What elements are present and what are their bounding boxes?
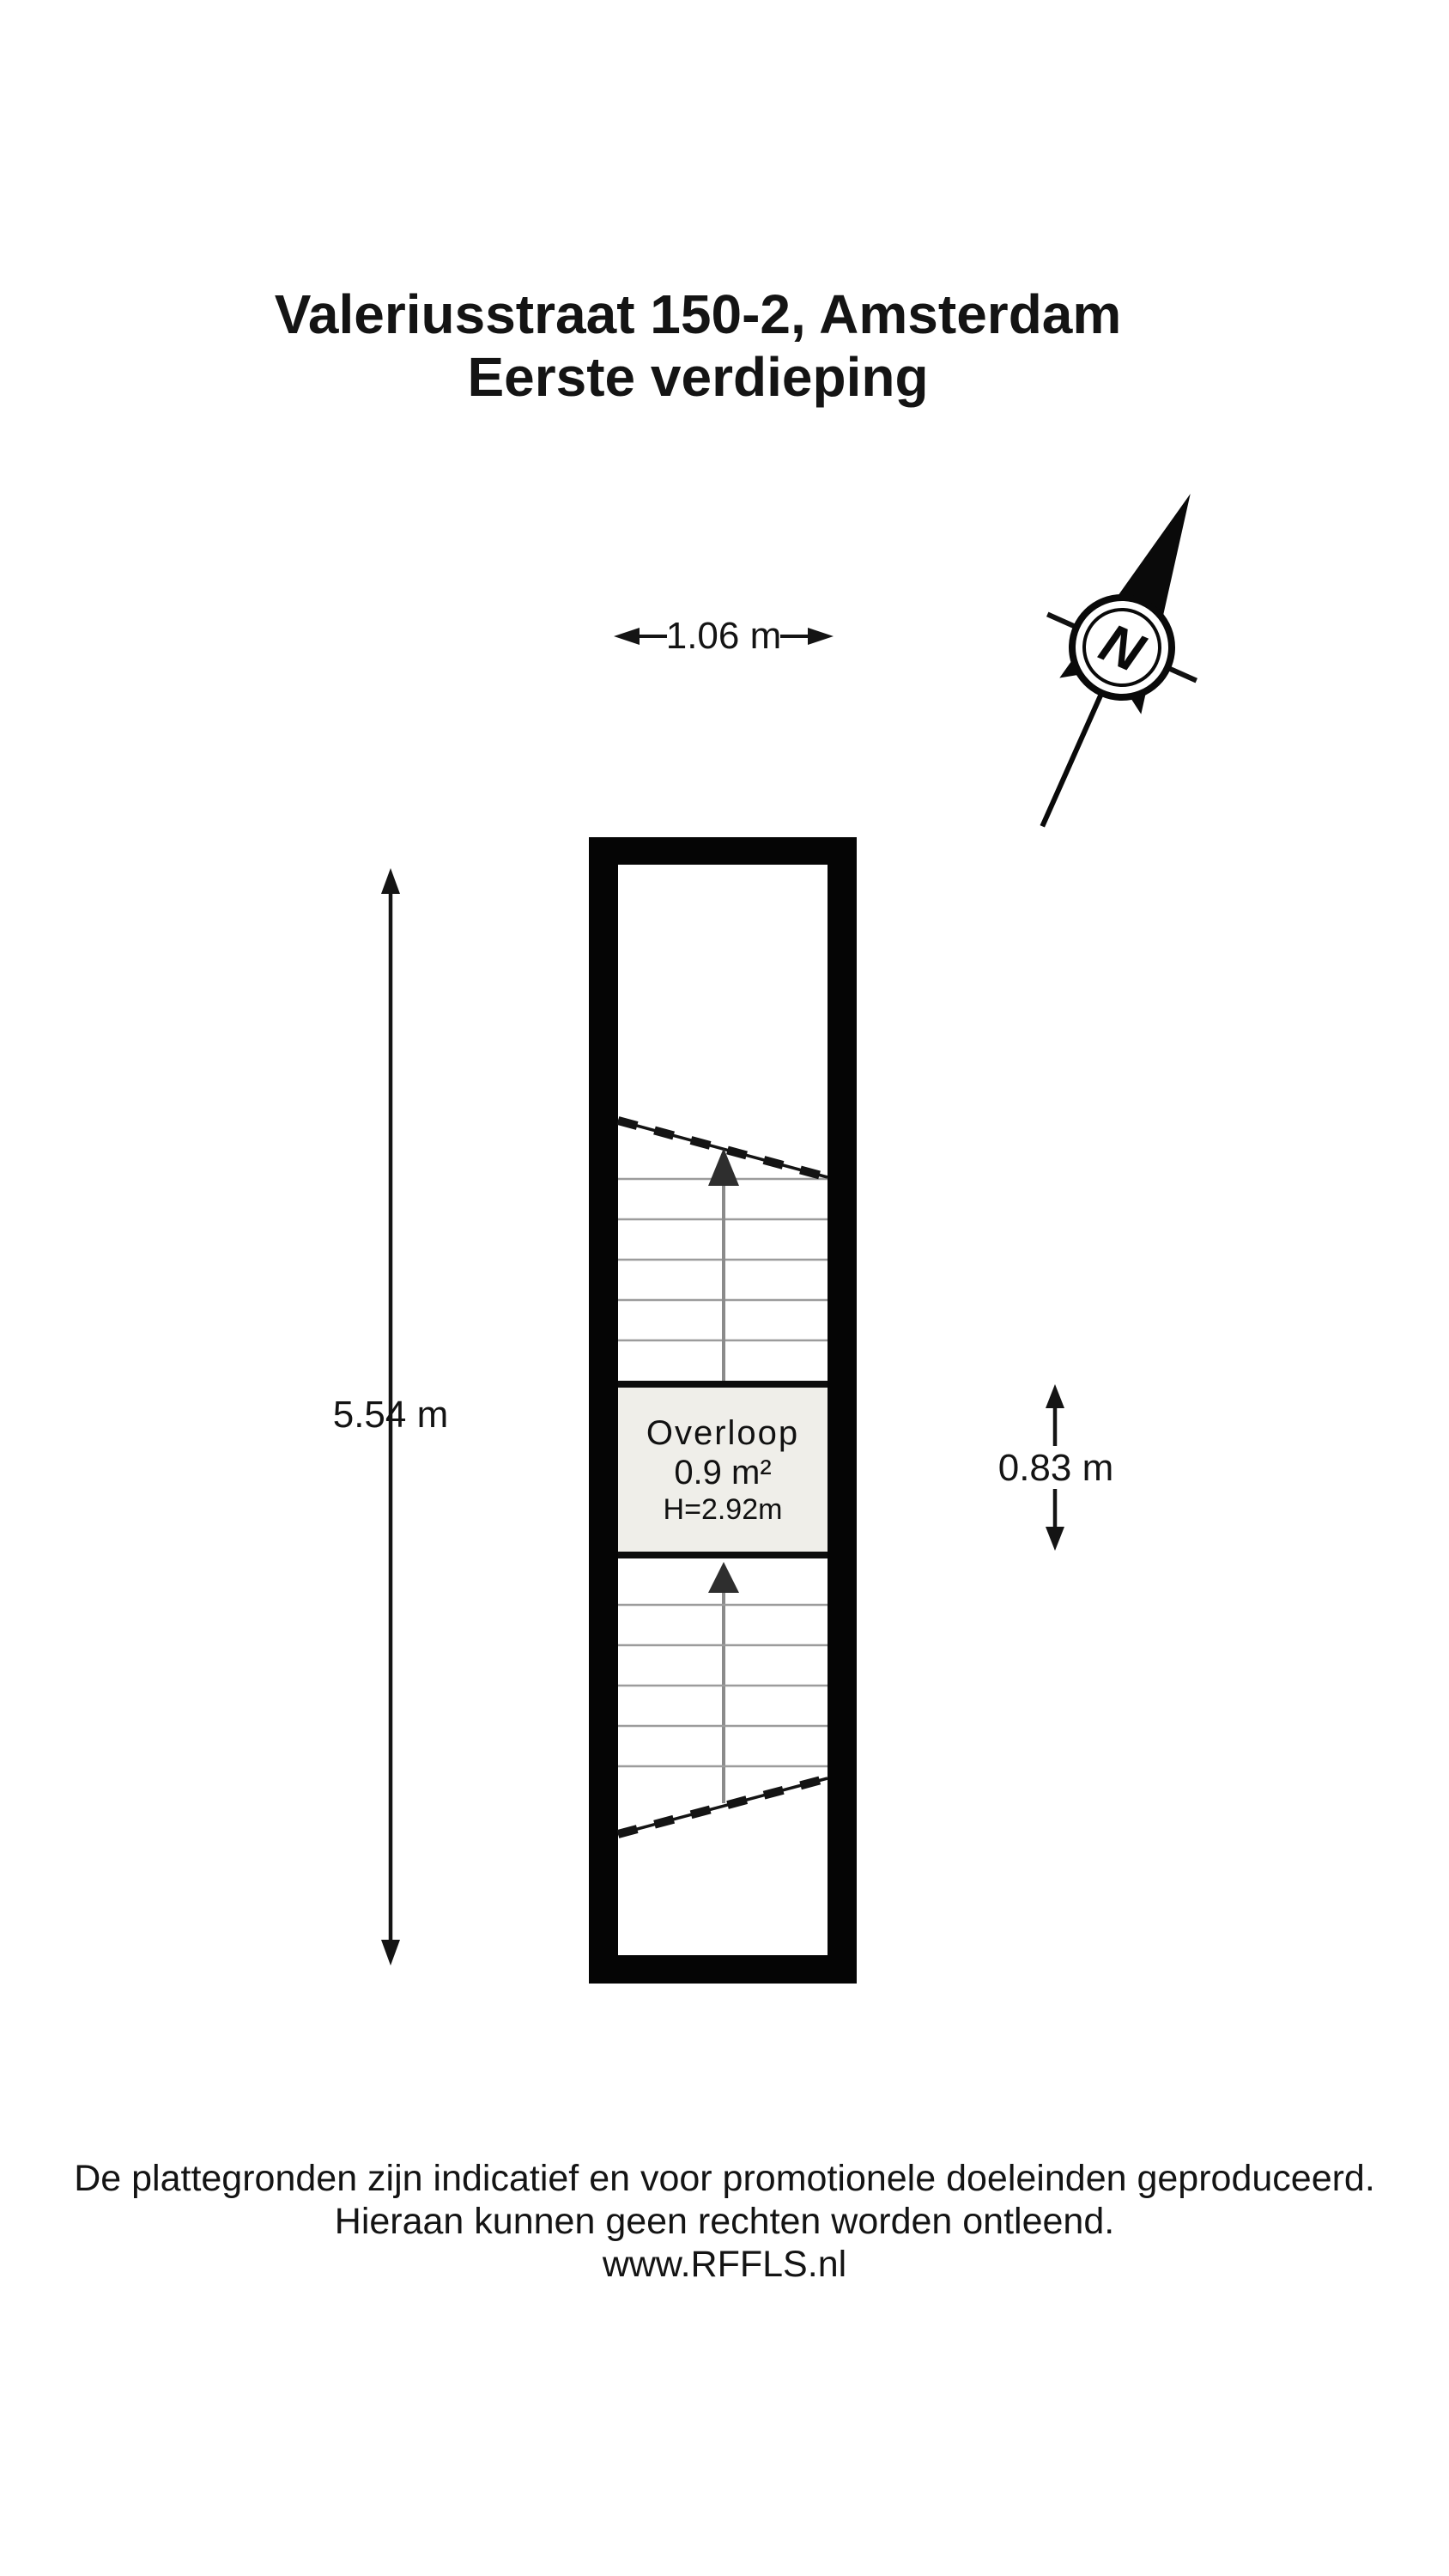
room-name: Overloop [646, 1413, 799, 1453]
dimension-width-label: 1.06 m [619, 612, 828, 660]
website-url: www.RFFLS.nl [0, 2243, 1449, 2286]
dimension-landing-label: 0.83 m [961, 1444, 1150, 1492]
footer-disclaimer: De plattegronden zijn indicatief en voor… [0, 2157, 1449, 2286]
disclaimer-line-2: Hieraan kunnen geen rechten worden ontle… [0, 2200, 1449, 2243]
arrow-up-head [1046, 1384, 1064, 1408]
arrow-down-head [381, 1940, 400, 1965]
dimension-height-label: 5.54 m [296, 1393, 485, 1437]
room-area: 0.9 m² [674, 1453, 771, 1492]
room-ceiling-height: H=2.92m [664, 1492, 783, 1527]
title-address: Valeriusstraat 150-2, Amsterdam [0, 283, 1396, 346]
north-arrow-icon: N [976, 459, 1268, 836]
room-label-overloop: Overloop 0.9 m² H=2.92m [618, 1388, 828, 1552]
arrow-up-head [381, 868, 400, 894]
floorplan-page: Valeriusstraat 150-2, Amsterdam Eerste v… [0, 0, 1449, 2576]
landing-bottom-line [618, 1552, 828, 1558]
page-title: Valeriusstraat 150-2, Amsterdam Eerste v… [0, 283, 1396, 409]
disclaimer-line-1: De plattegronden zijn indicatief en voor… [0, 2157, 1449, 2200]
title-floor: Eerste verdieping [0, 346, 1396, 409]
arrow-down-head [1046, 1527, 1064, 1551]
landing-top-line [618, 1381, 828, 1388]
